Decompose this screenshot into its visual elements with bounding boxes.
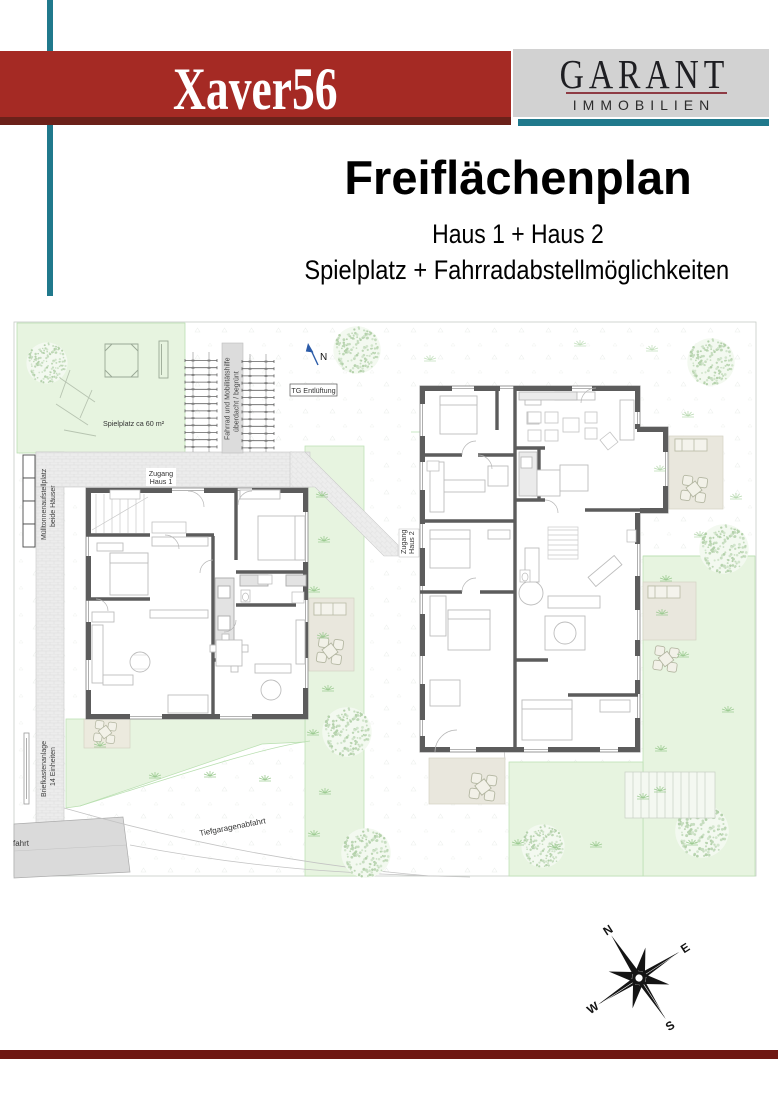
svg-text:fahrt: fahrt — [13, 839, 30, 848]
svg-text:Briefkastenanlage: Briefkastenanlage — [41, 741, 48, 797]
svg-text:überdacht / begrünt: überdacht / begrünt — [234, 371, 241, 432]
svg-text:TG Entlüftung: TG Entlüftung — [291, 386, 335, 395]
svg-text:Haus 1: Haus 1 — [150, 477, 173, 486]
svg-text:Fahrrad und Mobilitätshilfe: Fahrrad und Mobilitätshilfe — [225, 357, 232, 440]
svg-text:Mülltonnenaufstellplatz: Mülltonnenaufstellplatz — [41, 468, 48, 540]
svg-text:beide Häuser: beide Häuser — [50, 485, 57, 527]
svg-text:E: E — [678, 940, 692, 956]
svg-text:Spielplatz ca 60 m²: Spielplatz ca 60 m² — [103, 419, 165, 428]
svg-text:N: N — [320, 352, 327, 363]
svg-text:W: W — [584, 999, 602, 1017]
svg-text:14 Einheiten: 14 Einheiten — [50, 747, 57, 786]
svg-text:N: N — [601, 922, 616, 938]
svg-text:Haus 2: Haus 2 — [407, 531, 416, 554]
svg-text:S: S — [663, 1018, 677, 1034]
